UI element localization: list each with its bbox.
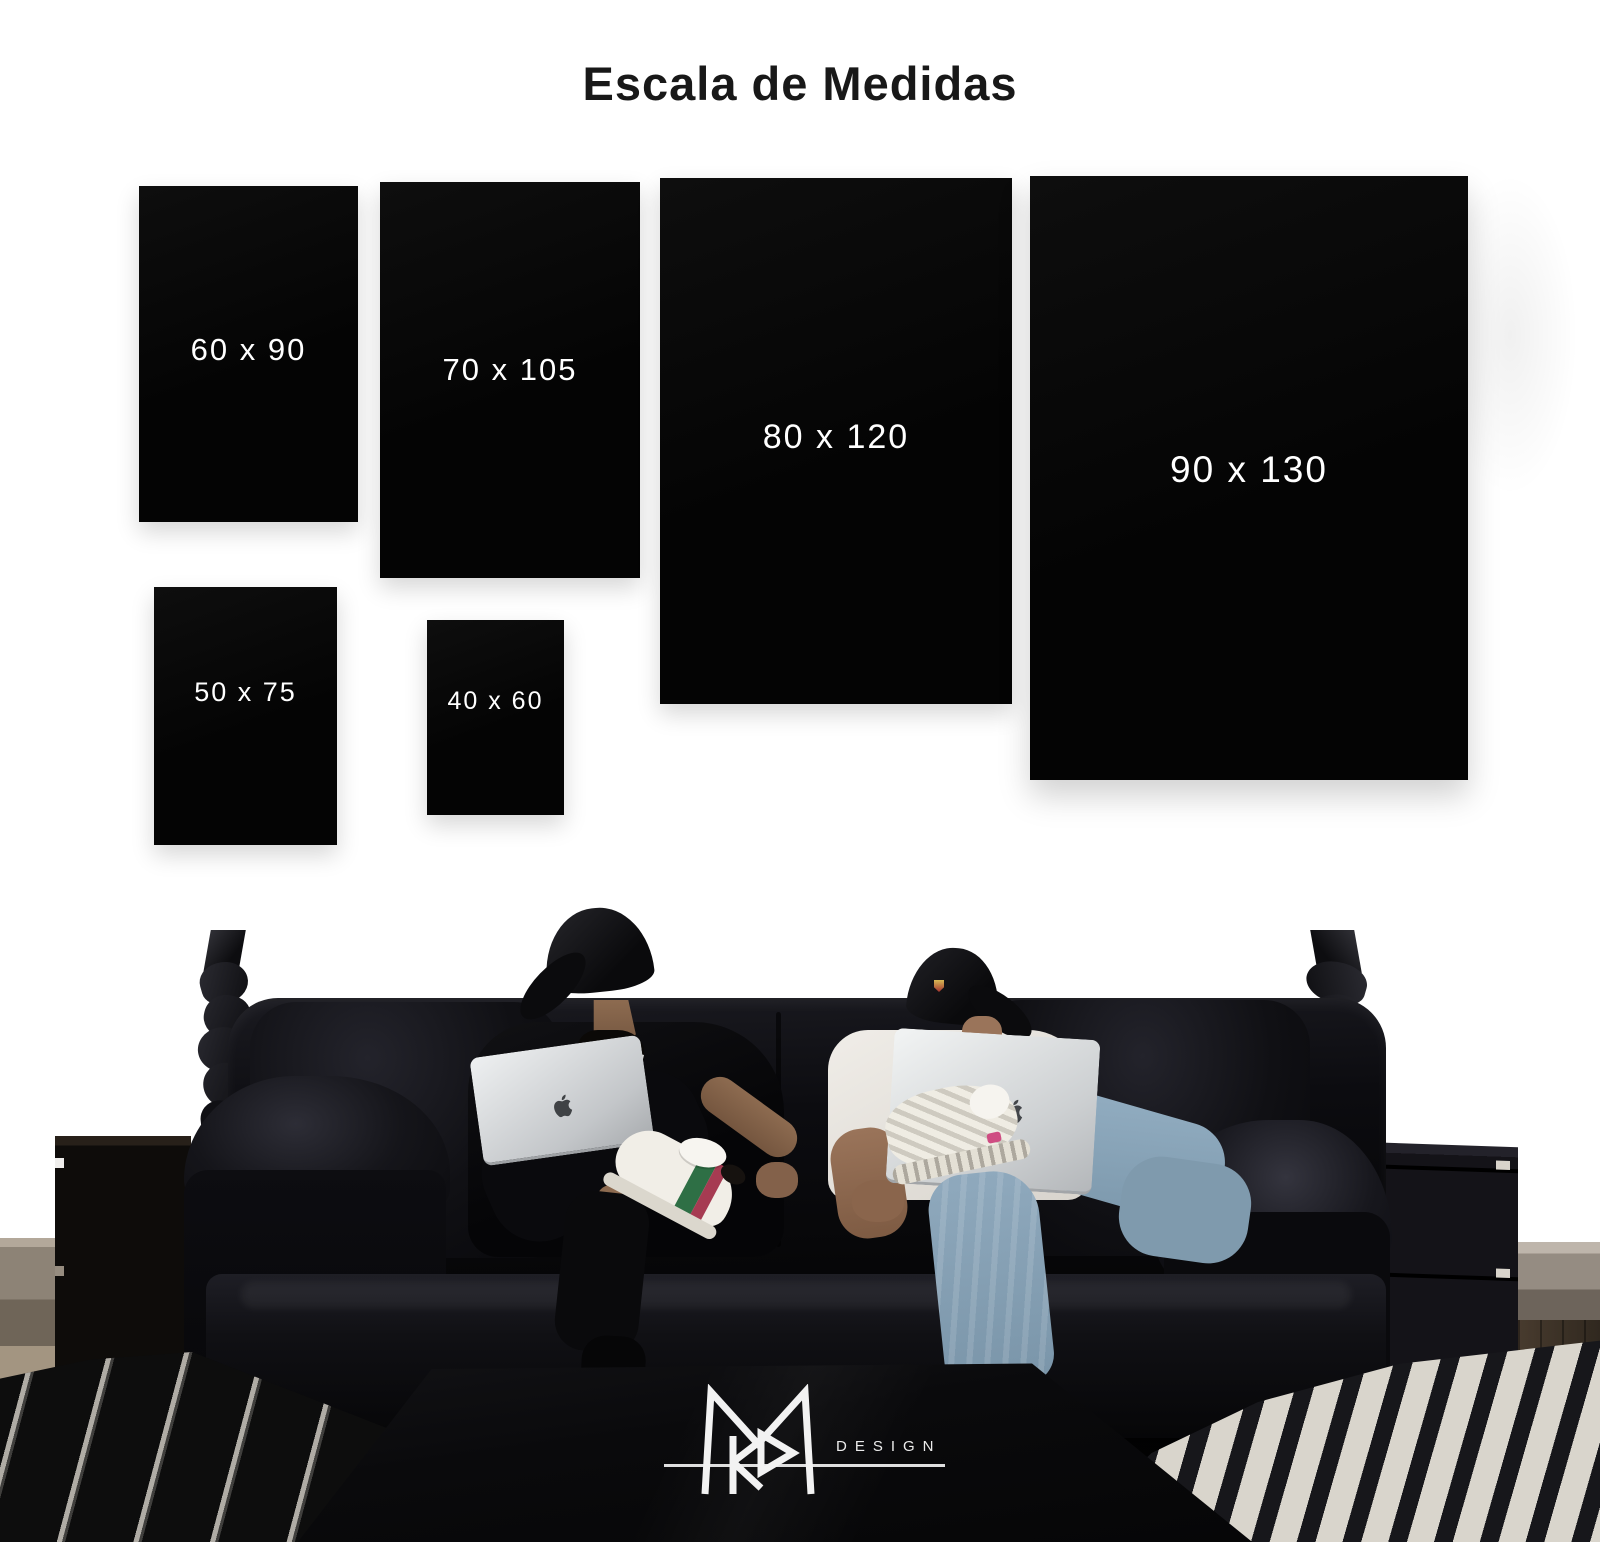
right-baseboard	[1518, 1242, 1600, 1324]
size-label: 40 x 60	[447, 687, 543, 716]
size-poster-50x75: 50 x 75	[154, 587, 337, 845]
drawer-gap	[55, 1266, 64, 1276]
drawer-gap	[55, 1158, 64, 1168]
apple-logo	[548, 1091, 577, 1120]
size-poster-40x60: 40 x 60	[427, 620, 564, 815]
page-title: Escala de Medidas	[0, 56, 1600, 111]
left-baseboard	[0, 1238, 58, 1350]
size-label: 70 x 105	[443, 352, 578, 388]
size-label: 60 x 90	[191, 332, 307, 368]
size-poster-90x130: 90 x 130	[1030, 176, 1468, 780]
size-poster-70x105: 70 x 105	[380, 182, 640, 578]
drawer-handle-cutout	[1496, 1269, 1510, 1278]
size-scale-infographic: Escala de Medidas 60 x 90 70 x 105 80 x …	[0, 0, 1600, 1542]
size-label: 50 x 75	[194, 677, 297, 708]
mr-monogram-icon	[694, 1384, 822, 1496]
person-left-hand	[756, 1162, 798, 1198]
size-poster-80x120: 80 x 120	[660, 178, 1012, 704]
size-label: 80 x 120	[763, 418, 909, 457]
brand-name: DESIGN	[836, 1438, 942, 1455]
size-label: 90 x 130	[1170, 449, 1328, 491]
drawer-handle-cutout	[1496, 1161, 1510, 1170]
size-poster-60x90: 60 x 90	[139, 186, 358, 522]
